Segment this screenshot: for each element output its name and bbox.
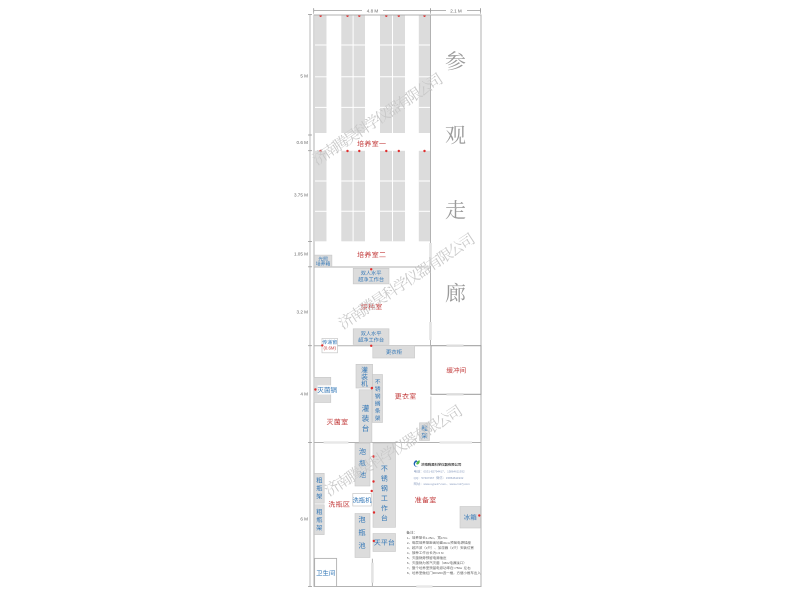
- svg-text:0.6 M: 0.6 M: [297, 140, 309, 145]
- svg-text:4 M: 4 M: [300, 392, 308, 397]
- svg-text:4.8 M: 4.8 M: [367, 9, 379, 14]
- svg-text:5 M: 5 M: [300, 74, 308, 79]
- svg-text:380v: 380v: [443, 561, 450, 565]
- svg-text:6 M: 6 M: [300, 516, 308, 521]
- svg-text:15864611932: 15864611932: [447, 470, 465, 474]
- svg-text:15864611932: 15864611932: [446, 476, 464, 480]
- svg-text:1.5 M: 1.5 M: [436, 551, 444, 555]
- svg-text:3.2 M: 3.2 M: [297, 309, 309, 314]
- svg-text:30cm: 30cm: [443, 541, 451, 545]
- svg-text:57407467: 57407467: [421, 476, 434, 480]
- svg-text:0.5m: 0.5m: [441, 536, 448, 540]
- svg-text:(0.6M): (0.6M): [323, 346, 336, 351]
- svg-text:90X200: 90X200: [433, 571, 443, 575]
- svg-text:2.1 M: 2.1 M: [450, 9, 462, 14]
- svg-text:>750w: >750w: [453, 566, 463, 570]
- svg-text:www.cn17j.com: www.cn17j.com: [450, 482, 471, 486]
- svg-text:QQ: QQ: [414, 476, 419, 480]
- svg-text:3.75 M: 3.75 M: [294, 193, 308, 198]
- svg-text:0531-82794417: 0531-82794417: [424, 470, 445, 474]
- svg-text:1.05 M: 1.05 M: [294, 251, 308, 256]
- svg-text:1.25m: 1.25m: [426, 536, 435, 540]
- svg-text:www.sype17.com: www.sype17.com: [424, 482, 447, 486]
